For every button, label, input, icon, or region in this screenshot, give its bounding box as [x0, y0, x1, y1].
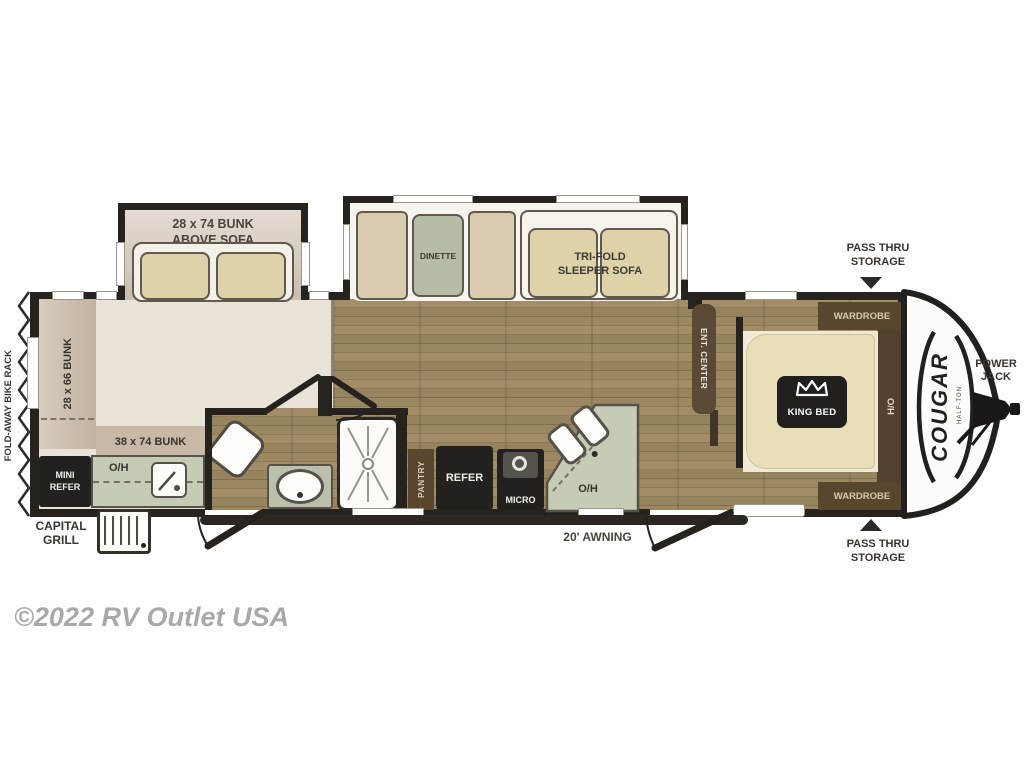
grill-l1: CAPITAL [35, 519, 86, 533]
pass-thru-bottom-l1: PASS THRU [847, 538, 910, 552]
bunkroom-door-arc [337, 406, 374, 420]
awning-label: 20' AWNING [563, 530, 631, 544]
bathroom-door-arc [318, 377, 328, 410]
door-overlay [0, 0, 1024, 768]
grill-labels: CAPITAL GRILL [28, 515, 94, 551]
grill-l2: GRILL [43, 533, 79, 547]
floorplan-canvas: 28 x 66 BUNK 38 x 74 BUNK MINI REFER O/H… [0, 0, 1024, 768]
pass-thru-top-l1: PASS THRU [847, 242, 910, 256]
power-jack-labels: POWER JACK [968, 356, 1024, 386]
power-jack-l2: JACK [981, 371, 1011, 384]
bunkroom-door [333, 379, 374, 406]
arrow-down-icon [860, 277, 882, 289]
arrow-up-icon [860, 519, 882, 531]
awning-label-wrap: 20' AWNING [545, 529, 650, 545]
watermark: ©2022 RV Outlet USA [14, 602, 354, 642]
rear-entry-door [208, 513, 262, 546]
main-entry-door [655, 513, 730, 548]
pass-thru-bottom-labels: PASS THRU STORAGE [830, 534, 926, 570]
power-jack-l1: POWER [975, 358, 1017, 371]
pass-thru-top-labels: PASS THRU STORAGE [830, 238, 926, 274]
pass-thru-bottom-l2: STORAGE [851, 552, 905, 566]
bathroom-door [266, 377, 318, 411]
pass-thru-top-l2: STORAGE [851, 256, 905, 270]
rear-entry-door-arc [198, 516, 208, 546]
